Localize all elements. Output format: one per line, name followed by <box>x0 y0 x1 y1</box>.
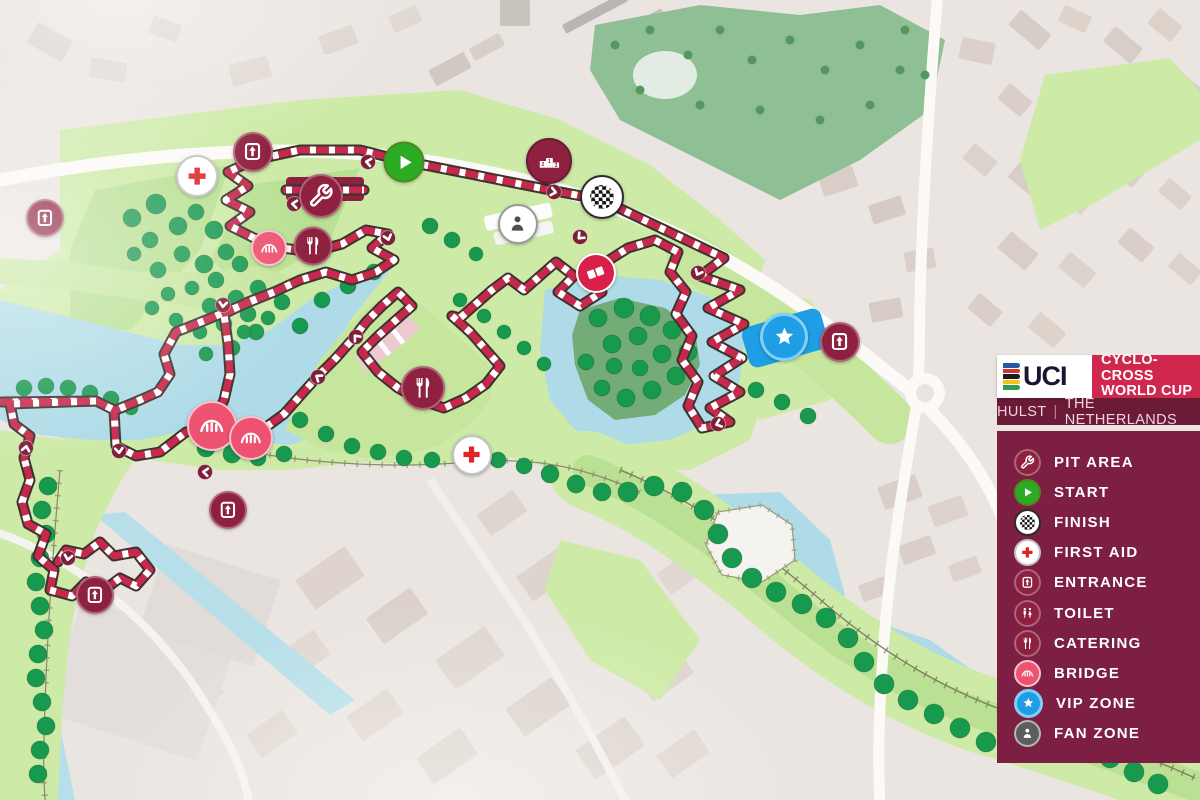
legend-item-entrance: ENTRANCE <box>1014 568 1200 598</box>
svg-text:2: 2 <box>541 161 544 167</box>
legend-label-fan-zone: FAN ZONE <box>1054 725 1140 742</box>
entrance-door-icon <box>78 578 112 612</box>
legend-label-bridge: BRIDGE <box>1054 665 1120 682</box>
legend-label-toilet: TOILET <box>1054 605 1115 622</box>
bridge-arch-icon <box>253 232 285 264</box>
legend-label-catering: CATERING <box>1054 635 1142 652</box>
legend-item-start: START <box>1014 477 1200 507</box>
map-marker-catering <box>401 366 445 410</box>
finish-checker-icon <box>1014 509 1041 536</box>
entrance-door-icon <box>235 134 271 170</box>
legend-item-vip-zone: VIP ZONE <box>1014 689 1200 719</box>
start-play-icon <box>386 144 423 181</box>
map-marker-catering <box>294 227 333 266</box>
legend-header: UCI CYCLO-CROSS WORLD CUP <box>997 355 1200 398</box>
star-icon <box>1014 689 1043 718</box>
map-marker-pit-area <box>299 174 343 218</box>
uci-logo: UCI <box>997 355 1092 398</box>
legend-item-pit-area: PIT AREA <box>1014 447 1200 477</box>
bridge-arch-icon <box>1014 660 1041 687</box>
finish-checker-icon <box>582 177 622 217</box>
legend-label-start: START <box>1054 484 1109 501</box>
person-icon <box>1014 720 1041 747</box>
map-marker-entrance <box>76 576 114 614</box>
toilet-icon <box>1014 600 1041 627</box>
map-marker-bridge <box>251 230 287 266</box>
location-city: HULST <box>997 404 1047 420</box>
map-marker-entrance <box>233 132 273 172</box>
legend-item-toilet: TOILET <box>1014 598 1200 628</box>
map-marker-first-aid <box>176 155 218 197</box>
entrance-door-icon <box>822 324 858 360</box>
red-cross-icon <box>178 157 216 195</box>
red-cross-icon <box>1014 539 1041 566</box>
svg-text:1: 1 <box>548 159 551 165</box>
legend-item-finish: FINISH <box>1014 507 1200 537</box>
map-marker-fan-zone <box>498 204 538 244</box>
wrench-icon <box>1014 449 1041 476</box>
cutlery-icon <box>403 368 443 408</box>
legend-panel: UCI CYCLO-CROSS WORLD CUP HULST | THE NE… <box>997 355 1200 763</box>
map-marker-barriers <box>576 253 616 293</box>
legend-label-vip-zone: VIP ZONE <box>1056 695 1136 712</box>
legend-label-pit-area: PIT AREA <box>1054 454 1134 471</box>
map-marker-first-aid <box>452 435 492 475</box>
bridge-arch-icon <box>231 418 271 458</box>
legend-item-bridge: BRIDGE <box>1014 658 1200 688</box>
red-cross-icon <box>454 437 490 473</box>
location-country: THE NETHERLANDS <box>1065 396 1200 428</box>
map-marker-podium: 213 <box>526 138 572 184</box>
legend-item-catering: CATERING <box>1014 628 1200 658</box>
map-marker-bridge <box>229 416 273 460</box>
legend-label-entrance: ENTRANCE <box>1054 574 1148 591</box>
map-marker-entrance <box>26 199 64 237</box>
svg-text:3: 3 <box>554 162 557 168</box>
star-icon <box>763 316 805 358</box>
cutlery-icon <box>1014 630 1041 657</box>
legend-label-first-aid: FIRST AID <box>1054 544 1138 561</box>
map-marker-start <box>384 142 425 183</box>
bridge-arch-icon <box>189 403 235 449</box>
legend-list: PIT AREA START FINISH FIRST AID ENTRANCE… <box>997 431 1200 763</box>
cutlery-icon <box>296 229 331 264</box>
wrench-icon <box>301 176 341 216</box>
legend-label-finish: FINISH <box>1054 514 1111 531</box>
uci-rainbow-icon <box>1003 363 1020 390</box>
map-marker-finish <box>580 175 624 219</box>
course-map-screenshot: 213 UCI CYCLO-CROSS WORLD CUP HULST | TH… <box>0 0 1200 800</box>
uci-logo-text: UCI <box>1023 363 1067 390</box>
legend-item-first-aid: FIRST AID <box>1014 538 1200 568</box>
planks-icon <box>578 255 614 291</box>
event-title: CYCLO-CROSS WORLD CUP <box>1092 355 1200 398</box>
podium-icon: 213 <box>528 140 570 182</box>
entrance-door-icon <box>211 493 245 527</box>
map-marker-vip-zone <box>760 313 808 361</box>
event-title-line1: CYCLO-CROSS <box>1101 353 1200 385</box>
legend-item-fan-zone: FAN ZONE <box>1014 719 1200 749</box>
entrance-door-icon <box>28 201 62 235</box>
start-play-icon <box>1014 479 1041 506</box>
entrance-door-icon <box>1014 569 1041 596</box>
event-location: HULST | THE NETHERLANDS <box>997 398 1200 425</box>
map-marker-entrance <box>209 491 247 529</box>
map-marker-entrance <box>820 322 860 362</box>
person-icon <box>500 206 536 242</box>
location-divider: | <box>1054 404 1058 420</box>
